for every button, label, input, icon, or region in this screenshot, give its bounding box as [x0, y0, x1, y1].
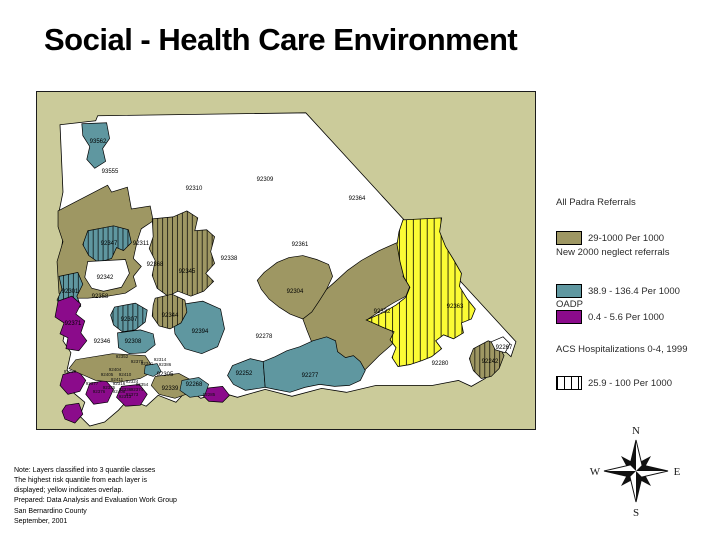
zip-label-92386: 92386: [159, 363, 172, 368]
legend-label-acs: 25.9 - 100 Per 1000: [588, 378, 672, 389]
zip-label-92352: 92352: [116, 355, 129, 360]
legend-label-neglect: 38.9 - 136.4 Per 1000: [588, 286, 680, 297]
map-panel: 9356293555923109230992364923619233892311…: [36, 91, 536, 430]
zip-label-92376: 92376: [93, 390, 106, 395]
zip-label-92361: 92361: [292, 242, 309, 248]
region-oadp-5: [62, 403, 83, 423]
legend-row-neglect: 38.9 - 136.4 Per 1000: [556, 284, 680, 298]
legend-row-padra: 29-1000 Per 1000: [556, 231, 664, 245]
zip-label-92408: 92408: [113, 390, 126, 395]
zip-label-92242: 92242: [482, 359, 499, 365]
zip-label-92308: 92308: [125, 339, 142, 345]
compass-east-label: E: [674, 466, 681, 478]
hatched-swatch: [556, 376, 582, 390]
zip-label-92305: 92305: [157, 372, 174, 378]
zip-label-92341: 92341: [141, 362, 154, 367]
zip-label-92345: 92345: [179, 269, 196, 275]
zip-label-92339: 92339: [162, 386, 179, 392]
note-line: The highest risk quantile from each laye…: [14, 476, 177, 486]
zip-label-92371: 92371: [65, 321, 82, 327]
khaki-swatch: [556, 231, 582, 245]
zip-label-92309: 92309: [257, 177, 274, 183]
zip-label-92338: 92338: [221, 256, 238, 262]
legend-heading-oadp: OADP: [556, 299, 583, 310]
zip-label-93562: 93562: [90, 139, 107, 145]
compass-rose: N S E W: [586, 416, 686, 520]
zip-label-92310: 92310: [186, 186, 203, 192]
zip-label-92267: 92267: [496, 345, 513, 351]
note-line: Prepared: Data Analysis and Evaluation W…: [14, 496, 177, 506]
zip-label-92358: 92358: [92, 294, 109, 300]
zip-label-92304: 92304: [287, 289, 304, 295]
legend-heading-acs: ACS Hospitalizations 0-4, 1999: [556, 344, 688, 355]
compass-north-label: N: [632, 425, 640, 437]
source-notes: Note: Layers classified into 3 quantile …: [14, 466, 177, 527]
compass-west-label: W: [590, 466, 601, 478]
compass-star: [604, 440, 668, 502]
zip-label-93555: 93555: [102, 169, 119, 175]
zip-label-92301: 92301: [62, 289, 79, 295]
zip-label-92268: 92268: [186, 382, 203, 388]
legend-label-padra: 29-1000 Per 1000: [588, 233, 664, 244]
zip-label-92347: 92347: [101, 241, 118, 247]
zip-label-92277: 92277: [302, 373, 319, 379]
teal-swatch: [556, 284, 582, 298]
note-line: San Bernardino County: [14, 507, 177, 517]
zip-label-92332: 92332: [374, 309, 391, 315]
zip-label-92377: 92377: [86, 382, 99, 387]
zip-label-92252: 92252: [236, 371, 253, 377]
zip-label-92364: 92364: [349, 196, 366, 202]
zip-label-92311: 92311: [133, 241, 149, 247]
note-line: displayed; yellow indicates overlap.: [14, 486, 177, 496]
note-line: September, 2001: [14, 517, 177, 527]
zip-label-92313: 92313: [119, 395, 132, 400]
compass-south-label: S: [633, 507, 639, 519]
zip-label-91759: 91759: [64, 370, 77, 375]
note-line: Note: Layers classified into 3 quantile …: [14, 466, 177, 476]
zip-label-92363: 92363: [447, 304, 464, 310]
zip-label-92278: 92278: [256, 334, 273, 340]
legend-label-oadp: 0.4 - 5.6 Per 1000: [588, 312, 664, 323]
zip-label-92280: 92280: [432, 361, 449, 367]
zip-label-92307: 92307: [121, 317, 138, 323]
legend-heading-padra: All Padra Referrals: [556, 197, 636, 208]
purple-swatch: [556, 310, 582, 324]
zip-label-92394: 92394: [192, 329, 209, 335]
legend-row-oadp: 0.4 - 5.6 Per 1000: [556, 310, 664, 324]
zip-label-92346: 92346: [94, 339, 111, 345]
legend-heading-neglect: New 2000 neglect referrals: [556, 247, 670, 258]
zip-label-92285: 92285: [203, 393, 216, 398]
legend-row-acs: 25.9 - 100 Per 1000: [556, 376, 672, 390]
zip-label-92368: 92368: [147, 262, 164, 268]
zip-label-92344: 92344: [162, 313, 179, 319]
zip-label-92342: 92342: [97, 275, 114, 281]
